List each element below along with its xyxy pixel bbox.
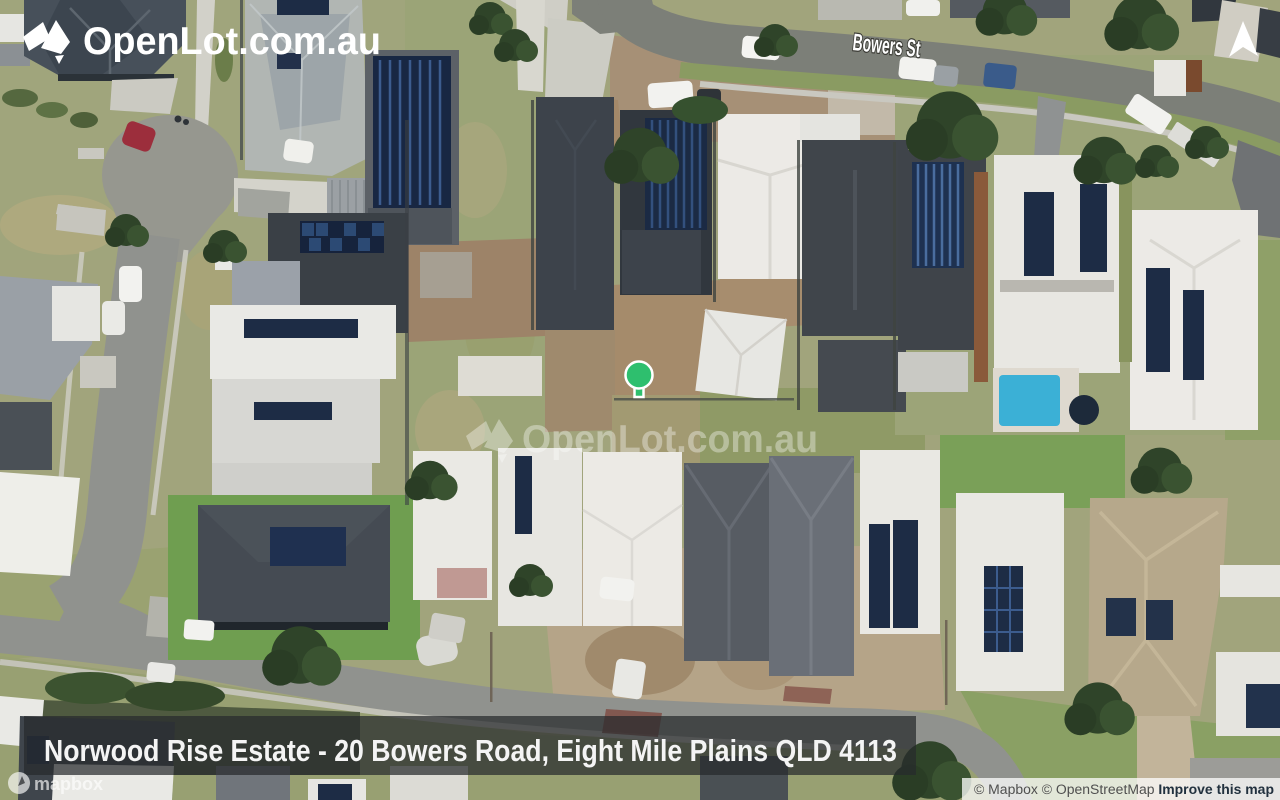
svg-text:Norwood Rise Estate - 20 Bower: Norwood Rise Estate - 20 Bowers Road, Ei… xyxy=(44,733,897,768)
svg-text:mapbox: mapbox xyxy=(34,774,103,794)
svg-text:OpenLot.com.au: OpenLot.com.au xyxy=(83,20,381,63)
svg-text:OpenLot.com.au: OpenLot.com.au xyxy=(522,418,818,461)
svg-text:© Mapbox © OpenStreetMap Impro: © Mapbox © OpenStreetMap Improve this ma… xyxy=(974,782,1274,797)
